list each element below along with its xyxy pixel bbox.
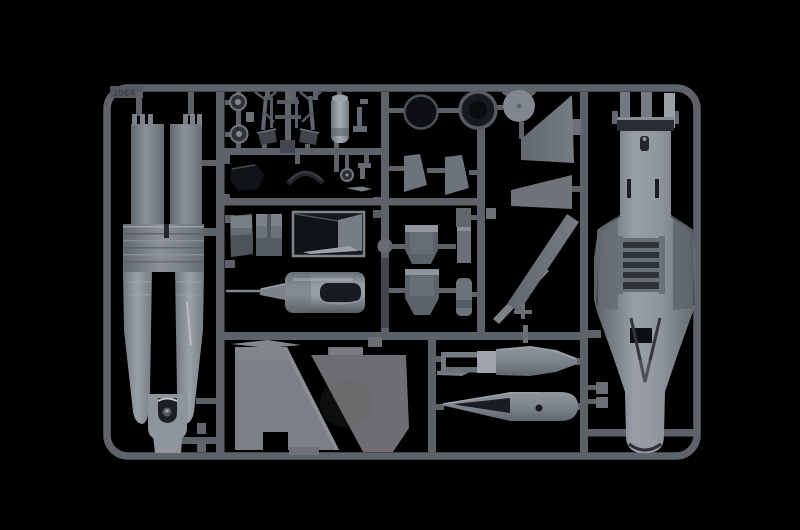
svg-text:1064: 1064 <box>113 88 135 98</box>
